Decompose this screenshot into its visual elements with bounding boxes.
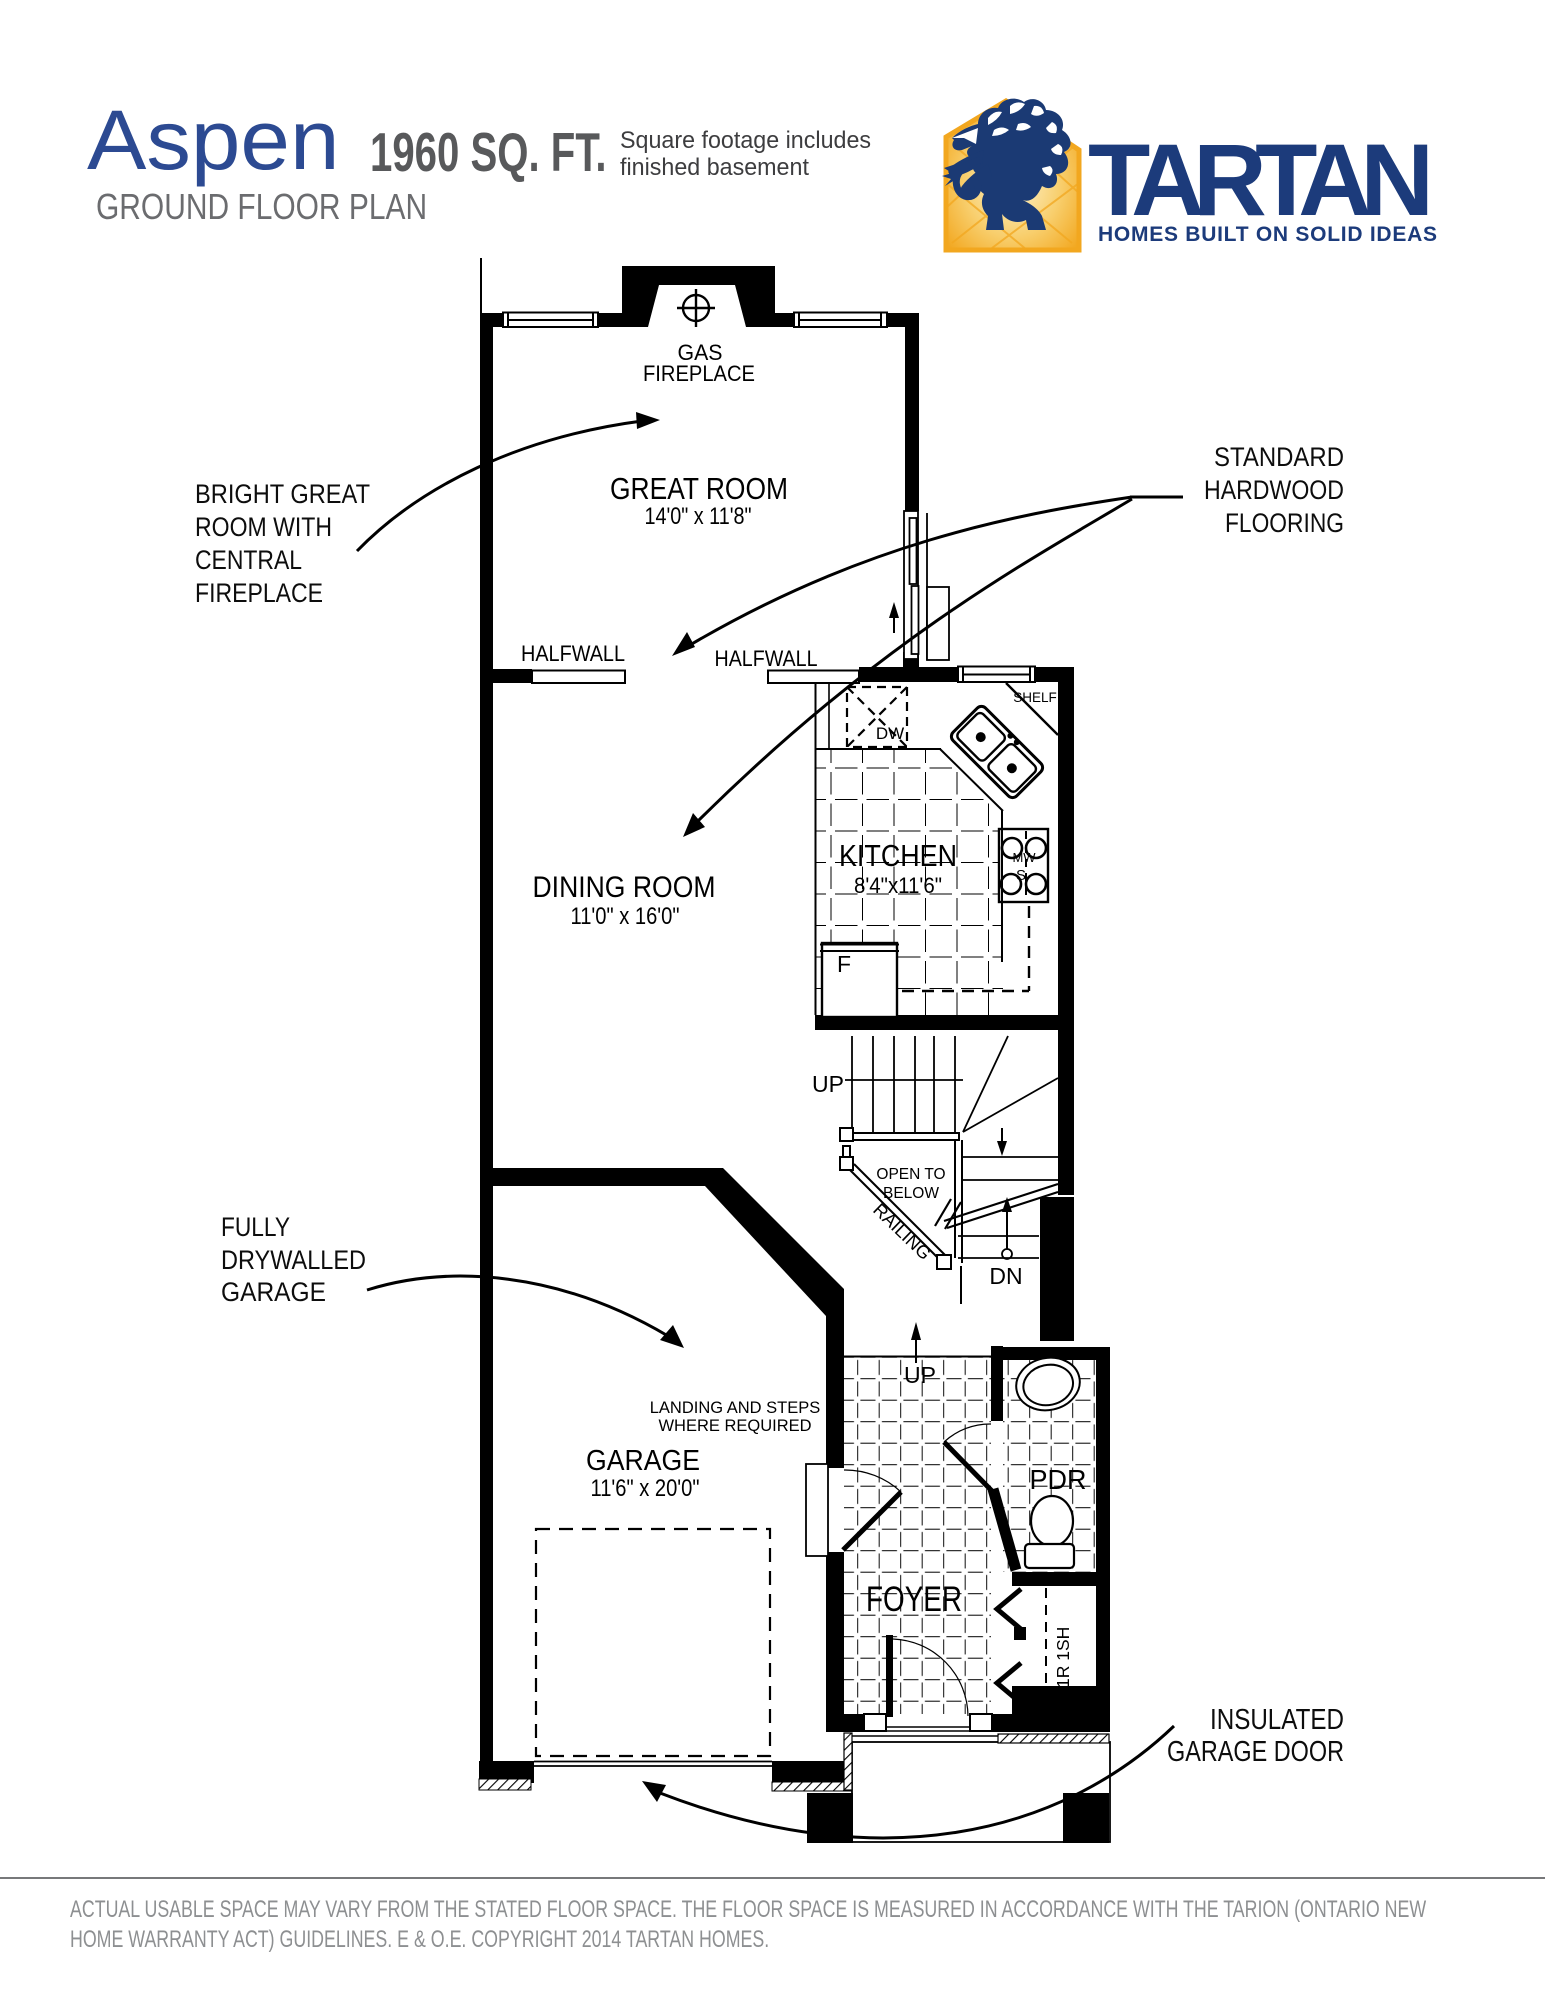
svg-text:BELOW: BELOW bbox=[883, 1185, 939, 1202]
svg-text:DW: DW bbox=[876, 724, 904, 743]
svg-text:FOYER: FOYER bbox=[866, 1580, 962, 1619]
svg-text:GARAGE: GARAGE bbox=[586, 1445, 700, 1477]
svg-text:GARAGE: GARAGE bbox=[221, 1277, 326, 1307]
svg-text:8'4"x11'6": 8'4"x11'6" bbox=[854, 873, 942, 898]
svg-text:UP: UP bbox=[904, 1362, 936, 1388]
svg-text:LANDING AND STEPS: LANDING AND STEPS bbox=[650, 1399, 821, 1417]
svg-text:11'0" x 16'0": 11'0" x 16'0" bbox=[571, 903, 680, 930]
svg-text:FIREPLACE: FIREPLACE bbox=[195, 578, 323, 608]
svg-text:11'6" x 20'0": 11'6" x 20'0" bbox=[591, 1475, 700, 1502]
svg-text:MW: MW bbox=[1012, 850, 1036, 865]
svg-text:WHERE REQUIRED: WHERE REQUIRED bbox=[658, 1417, 811, 1435]
svg-text:1R 1SH: 1R 1SH bbox=[1053, 1627, 1073, 1688]
svg-text:DRYWALLED: DRYWALLED bbox=[221, 1245, 366, 1275]
svg-text:STANDARD: STANDARD bbox=[1214, 442, 1344, 472]
svg-text:RAILING: RAILING bbox=[869, 1199, 935, 1263]
svg-text:HALFWALL: HALFWALL bbox=[521, 641, 625, 666]
svg-text:FULLY: FULLY bbox=[221, 1212, 290, 1242]
svg-text:DN: DN bbox=[989, 1263, 1022, 1289]
svg-text:DINING ROOM: DINING ROOM bbox=[533, 871, 716, 904]
svg-text:BRIGHT GREAT: BRIGHT GREAT bbox=[195, 479, 370, 509]
svg-text:S: S bbox=[1016, 867, 1026, 884]
svg-text:FIREPLACE: FIREPLACE bbox=[643, 361, 755, 386]
svg-text:INSULATED: INSULATED bbox=[1210, 1704, 1344, 1736]
svg-text:OPEN TO: OPEN TO bbox=[876, 1166, 945, 1183]
svg-text:KITCHEN: KITCHEN bbox=[839, 838, 957, 873]
svg-text:PDR: PDR bbox=[1030, 1464, 1087, 1495]
svg-text:GARAGE DOOR: GARAGE DOOR bbox=[1167, 1736, 1344, 1768]
svg-text:HALFWALL: HALFWALL bbox=[715, 646, 818, 671]
svg-text:UP: UP bbox=[812, 1071, 844, 1097]
svg-text:HARDWOOD: HARDWOOD bbox=[1204, 475, 1344, 505]
svg-text:FLOORING: FLOORING bbox=[1225, 508, 1344, 538]
svg-text:CENTRAL: CENTRAL bbox=[195, 545, 302, 575]
svg-text:ROOM WITH: ROOM WITH bbox=[195, 512, 332, 542]
svg-text:14'0" x 11'8": 14'0" x 11'8" bbox=[645, 503, 752, 530]
svg-text:SHELF: SHELF bbox=[1013, 690, 1057, 705]
svg-text:GREAT ROOM: GREAT ROOM bbox=[610, 471, 788, 506]
svg-text:F: F bbox=[837, 951, 851, 977]
